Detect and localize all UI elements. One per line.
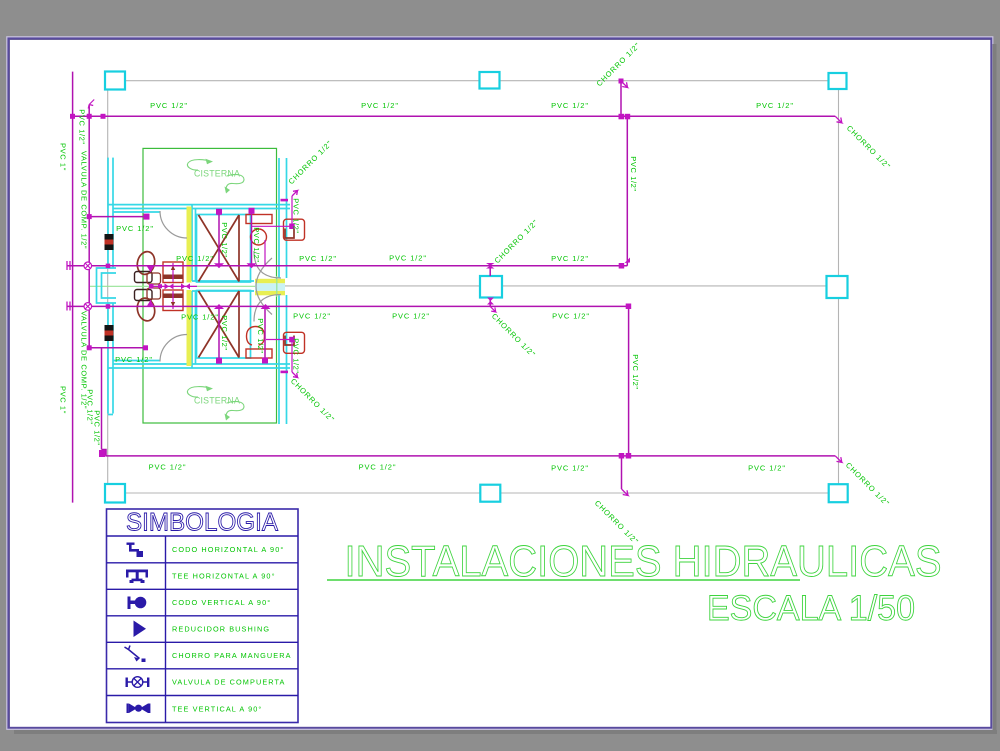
svg-text:PVC 1/2": PVC 1/2" xyxy=(551,254,589,263)
svg-text:PVC 1/2": PVC 1/2" xyxy=(359,463,397,472)
svg-text:PVC 1/2": PVC 1/2" xyxy=(256,318,265,353)
svg-text:VALVULA DE COMPUERTA: VALVULA DE COMPUERTA xyxy=(172,678,286,687)
svg-text:PVC 1/2": PVC 1/2" xyxy=(552,312,590,321)
svg-text:PVC 1/2": PVC 1/2" xyxy=(176,254,214,263)
svg-text:CISTERNA: CISTERNA xyxy=(194,169,240,179)
svg-text:PVC 1/2": PVC 1/2" xyxy=(292,198,301,233)
svg-text:PVC 1/2": PVC 1/2" xyxy=(293,312,331,321)
svg-text:VALVULA DE COMP. 1/2": VALVULA DE COMP. 1/2" xyxy=(80,151,89,249)
svg-text:PVC 1/2": PVC 1/2" xyxy=(551,464,589,473)
svg-text:PVC 1/2": PVC 1/2" xyxy=(220,315,229,350)
svg-text:PVC 1": PVC 1" xyxy=(59,386,68,414)
svg-text:INSTALACIONES HIDRAULICAS: INSTALACIONES HIDRAULICAS xyxy=(345,537,942,586)
svg-text:PVC 1/2": PVC 1/2" xyxy=(181,313,219,322)
svg-text:PVC 1/2": PVC 1/2" xyxy=(150,101,188,110)
svg-text:PVC 1/2": PVC 1/2" xyxy=(252,227,261,262)
svg-text:REDUCIDOR BUSHING: REDUCIDOR BUSHING xyxy=(172,625,270,634)
svg-text:PVC 1/2": PVC 1/2" xyxy=(149,463,187,472)
svg-text:PVC 1/2": PVC 1/2" xyxy=(115,355,153,364)
svg-text:CHORRO PARA MANGUERA: CHORRO PARA MANGUERA xyxy=(172,651,292,660)
svg-text:TEE HORIZONTAL A 90°: TEE HORIZONTAL A 90° xyxy=(172,572,276,581)
svg-text:PVC 1": PVC 1" xyxy=(59,143,68,171)
svg-text:PVC 1/2": PVC 1/2" xyxy=(220,222,229,257)
svg-text:CODO VERTICAL A 90°: CODO VERTICAL A 90° xyxy=(172,598,271,607)
svg-text:PVC 1/2": PVC 1/2" xyxy=(299,254,337,263)
svg-text:CODO HORIZONTAL A 90°: CODO HORIZONTAL A 90° xyxy=(172,545,284,554)
svg-text:TEE VERTICAL A 90°: TEE VERTICAL A 90° xyxy=(172,705,262,714)
svg-text:PVC 1/2": PVC 1/2" xyxy=(551,101,589,110)
svg-text:CISTERNA: CISTERNA xyxy=(194,396,240,406)
svg-text:PVC 1/2": PVC 1/2" xyxy=(78,109,87,144)
svg-text:PVC 1/2": PVC 1/2" xyxy=(629,156,638,191)
svg-text:PVC 1/2": PVC 1/2" xyxy=(631,354,640,389)
svg-text:PVC 1/2": PVC 1/2" xyxy=(392,312,430,321)
svg-text:PVC 1/2": PVC 1/2" xyxy=(361,101,399,110)
svg-text:PVC 1/2": PVC 1/2" xyxy=(756,101,794,110)
svg-text:PVC 1/2": PVC 1/2" xyxy=(748,464,786,473)
svg-text:ESCALA 1/50: ESCALA 1/50 xyxy=(707,589,915,628)
svg-text:PVC 1/2": PVC 1/2" xyxy=(93,410,102,445)
svg-text:SIMBOLOGIA: SIMBOLOGIA xyxy=(126,509,278,537)
svg-text:PVC 1/2": PVC 1/2" xyxy=(116,224,154,233)
svg-text:PVC 1/2": PVC 1/2" xyxy=(389,254,427,263)
svg-text:PVC 1/2": PVC 1/2" xyxy=(292,338,301,373)
